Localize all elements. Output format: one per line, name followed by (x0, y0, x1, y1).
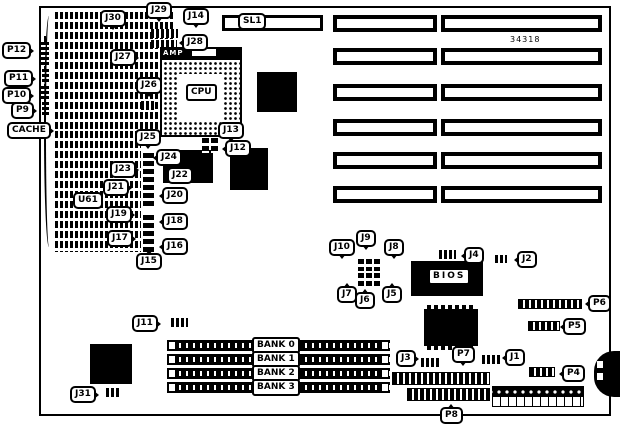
jumper-j9 (366, 259, 372, 271)
cpu-label: CPU (186, 84, 217, 101)
jumper-j12 (211, 138, 218, 153)
isa-slot-6-long (441, 186, 602, 203)
callout-j25: J25 (135, 129, 161, 146)
callout-j9: J9 (356, 230, 376, 247)
isa-slot-1-long (441, 15, 602, 32)
callout-sl1: SL1 (238, 13, 266, 30)
keyboard-din-connector (594, 351, 620, 397)
chip-right-of-cpu (257, 72, 297, 112)
callout-j10: J10 (329, 239, 355, 256)
callout-u61: U61 (73, 192, 103, 209)
jumper-j5 (374, 273, 380, 286)
callout-j13: J13 (218, 122, 244, 139)
callout-j17: J17 (107, 230, 133, 247)
connector-p4 (529, 367, 555, 377)
callout-j24: J24 (156, 149, 182, 166)
jumper-j3 (421, 358, 440, 367)
jumper-j11 (171, 318, 188, 327)
callout-p11: P11 (4, 70, 33, 87)
isa-slot-6-short (333, 186, 437, 203)
callout-j14: J14 (183, 8, 209, 25)
callout-j26: J26 (136, 77, 162, 94)
isa-slot-2-long (441, 48, 602, 65)
callout-j7: J7 (337, 286, 357, 303)
jumper-j2 (495, 255, 507, 263)
callout-j12: J12 (225, 140, 251, 157)
callout-j16: J16 (162, 238, 188, 255)
isa-slot-5-short (333, 152, 437, 169)
header-pin-row (492, 386, 584, 396)
isa-slot-5-long (441, 152, 602, 169)
header-socket-row (492, 396, 584, 407)
callout-j4: J4 (464, 247, 484, 264)
callout-p6: P6 (588, 295, 611, 312)
callout-j19: J19 (106, 206, 132, 223)
part-number: 34318 (510, 35, 540, 44)
bios-label: BIOS (428, 268, 470, 285)
callout-j21: J21 (103, 179, 129, 196)
connector-p7 (392, 372, 490, 385)
callout-j31: J31 (70, 386, 96, 403)
callout-p9: P9 (11, 102, 34, 119)
callout-j30: J30 (100, 10, 126, 27)
callout-j28: J28 (182, 34, 208, 51)
jumper-j4 (439, 250, 456, 259)
callout-p8: P8 (440, 407, 463, 424)
callout-j5: J5 (382, 286, 402, 303)
callout-j29: J29 (146, 2, 172, 19)
callout-j15: J15 (136, 253, 162, 270)
callout-p4: P4 (562, 365, 585, 382)
callout-j11: J11 (132, 315, 158, 332)
jumper-j8 (374, 259, 380, 271)
bank3-label: BANK 3 (252, 379, 300, 396)
callout-j8: J8 (384, 239, 404, 256)
callout-j6: J6 (355, 292, 375, 309)
callout-j27: J27 (110, 49, 136, 66)
callout-p7: P7 (452, 346, 475, 363)
callout-j18: J18 (162, 213, 188, 230)
isa-slot-1-short (333, 15, 437, 32)
amp-brand-text: AMP (163, 49, 184, 57)
callout-j23: J23 (110, 161, 136, 178)
jumper-j29 (151, 29, 178, 38)
isa-slot-2-short (333, 48, 437, 65)
callout-j20: J20 (162, 187, 188, 204)
callout-j1: J1 (505, 349, 525, 366)
callout-j22: J22 (167, 167, 193, 184)
jumper-j31 (106, 388, 121, 397)
chip-bottom-left (90, 344, 132, 384)
isa-slot-3-long (441, 84, 602, 101)
isa-slot-3-short (333, 84, 437, 101)
callout-p5: P5 (563, 318, 586, 335)
isa-slot-4-short (333, 119, 437, 136)
jumper-j13 (202, 138, 209, 153)
jumper-j10 (358, 259, 364, 271)
jumper-j26 (141, 101, 155, 110)
callout-j2: J2 (517, 251, 537, 268)
callout-j3: J3 (396, 350, 416, 367)
callout-cache: CACHE (7, 122, 51, 139)
motherboard-diagram: 34318 AMP CPU BIOS (0, 0, 626, 428)
isa-slot-4-long (441, 119, 602, 136)
connector-p6 (518, 299, 582, 309)
qfp-chip (424, 309, 478, 346)
callout-p12: P12 (2, 42, 31, 59)
